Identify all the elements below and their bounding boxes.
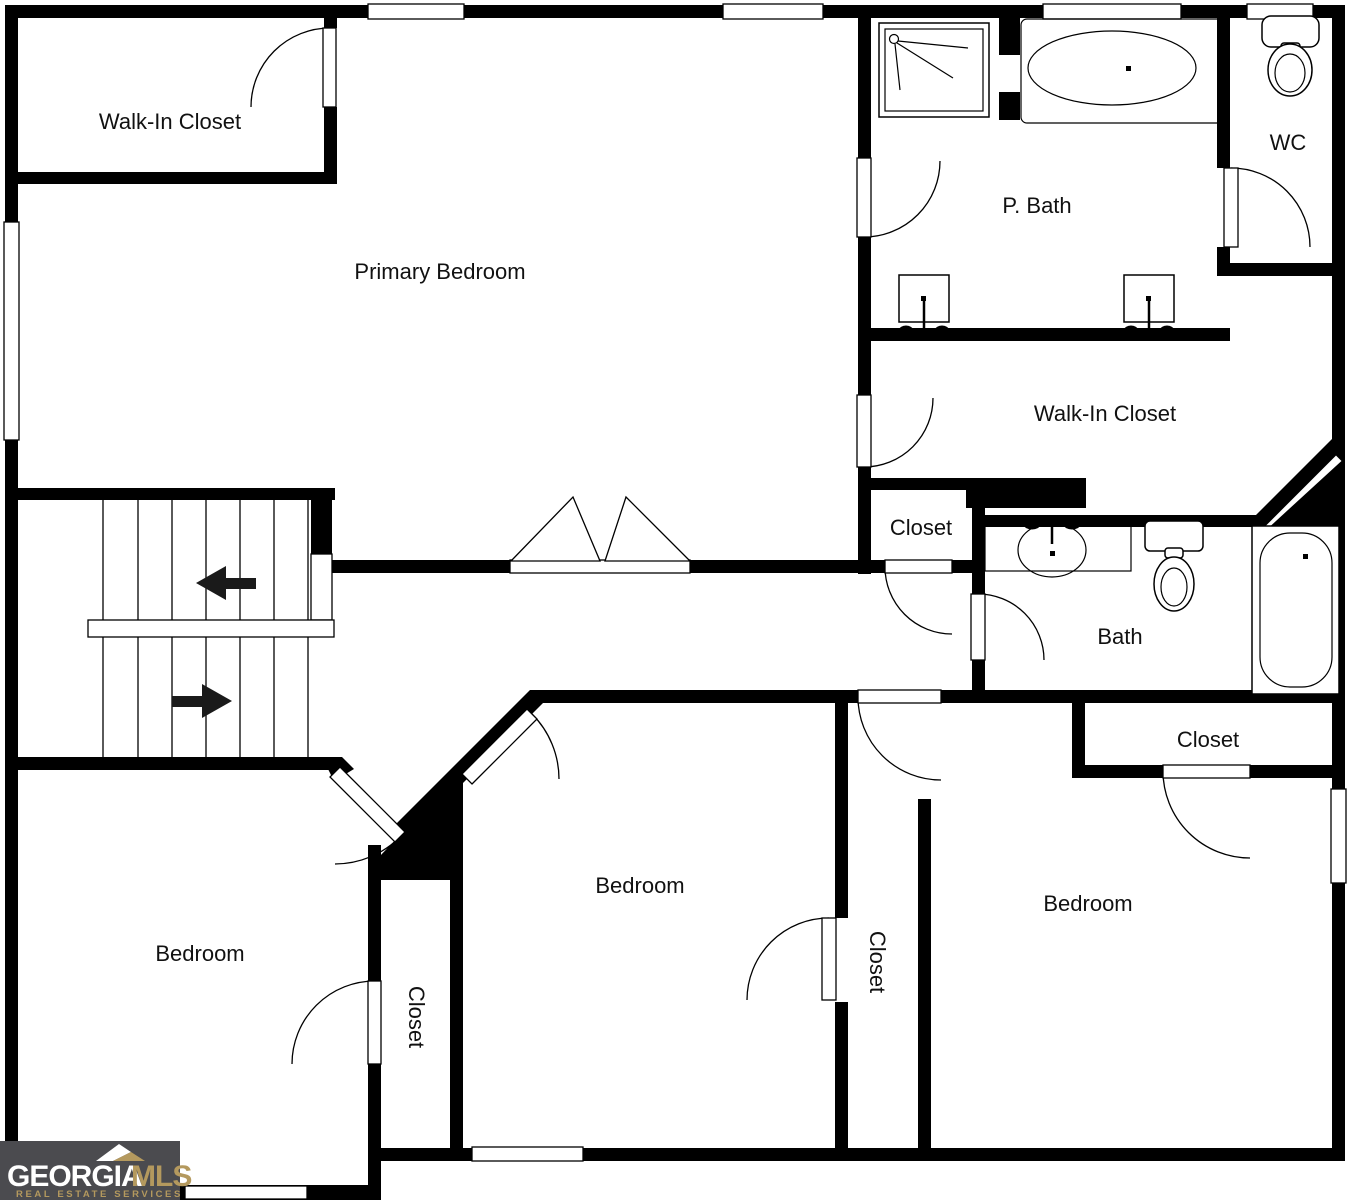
door-bedroom-mid-closet (747, 918, 836, 1000)
room-labels: Walk-In Closet Primary Bedroom P. Bath W… (99, 109, 1307, 1048)
right-arrow-icon (172, 684, 232, 718)
bathtub-icon (1021, 19, 1228, 123)
door-bedroom-left-closet (292, 981, 381, 1064)
room-label-p-bath: P. Bath (1002, 193, 1071, 218)
georgia-mls-logo: GEORGIA MLS REAL ESTATE SERVICES (0, 1141, 191, 1200)
room-label-primary-bedroom: Primary Bedroom (354, 259, 525, 284)
logo-tagline: REAL ESTATE SERVICES (16, 1189, 183, 1200)
window (368, 4, 464, 19)
window (185, 1186, 307, 1199)
window (4, 222, 19, 440)
shower-icon (879, 23, 989, 117)
room-label-closet-strip-mid: Closet (865, 931, 890, 993)
floor-plan: Walk-In Closet Primary Bedroom P. Bath W… (0, 0, 1354, 1200)
door-hall-closet (885, 560, 952, 634)
toilet-icon (1145, 521, 1203, 611)
left-arrow-icon (196, 566, 256, 600)
door-pbath (857, 158, 940, 237)
window (1043, 4, 1181, 19)
stair-rail (311, 554, 332, 620)
double-door-primary-bedroom (510, 497, 690, 573)
room-label-wc: WC (1270, 130, 1307, 155)
door-bath (971, 594, 1044, 660)
room-label-bath: Bath (1097, 624, 1142, 649)
room-label-closet-strip-left: Closet (404, 986, 429, 1048)
door-mid-closet-strip (858, 690, 941, 780)
bathtub-icon (1252, 526, 1339, 694)
staircase (88, 500, 334, 757)
window (723, 4, 823, 19)
room-label-hall-closet: Closet (890, 515, 952, 540)
fixtures (879, 16, 1339, 694)
room-label-bedroom-left: Bedroom (155, 941, 244, 966)
window (472, 1147, 583, 1161)
sink-icon (899, 275, 949, 335)
door-walkin-closet-tl (251, 28, 336, 107)
toilet-icon (1262, 16, 1319, 96)
door-walkin-closet-r (857, 395, 933, 467)
room-label-bedroom-mid: Bedroom (595, 873, 684, 898)
stair-landing (88, 620, 334, 637)
room-label-walk-in-closet-tl: Walk-In Closet (99, 109, 241, 134)
window (1331, 789, 1346, 883)
room-label-walk-in-closet-r: Walk-In Closet (1034, 401, 1176, 426)
room-label-closet-br: Closet (1177, 727, 1239, 752)
stair-treads-upper (103, 500, 308, 620)
door-wc (1224, 168, 1310, 247)
door-closet-br (1163, 765, 1250, 858)
room-label-bedroom-right: Bedroom (1043, 891, 1132, 916)
sink-icon (1124, 275, 1174, 335)
